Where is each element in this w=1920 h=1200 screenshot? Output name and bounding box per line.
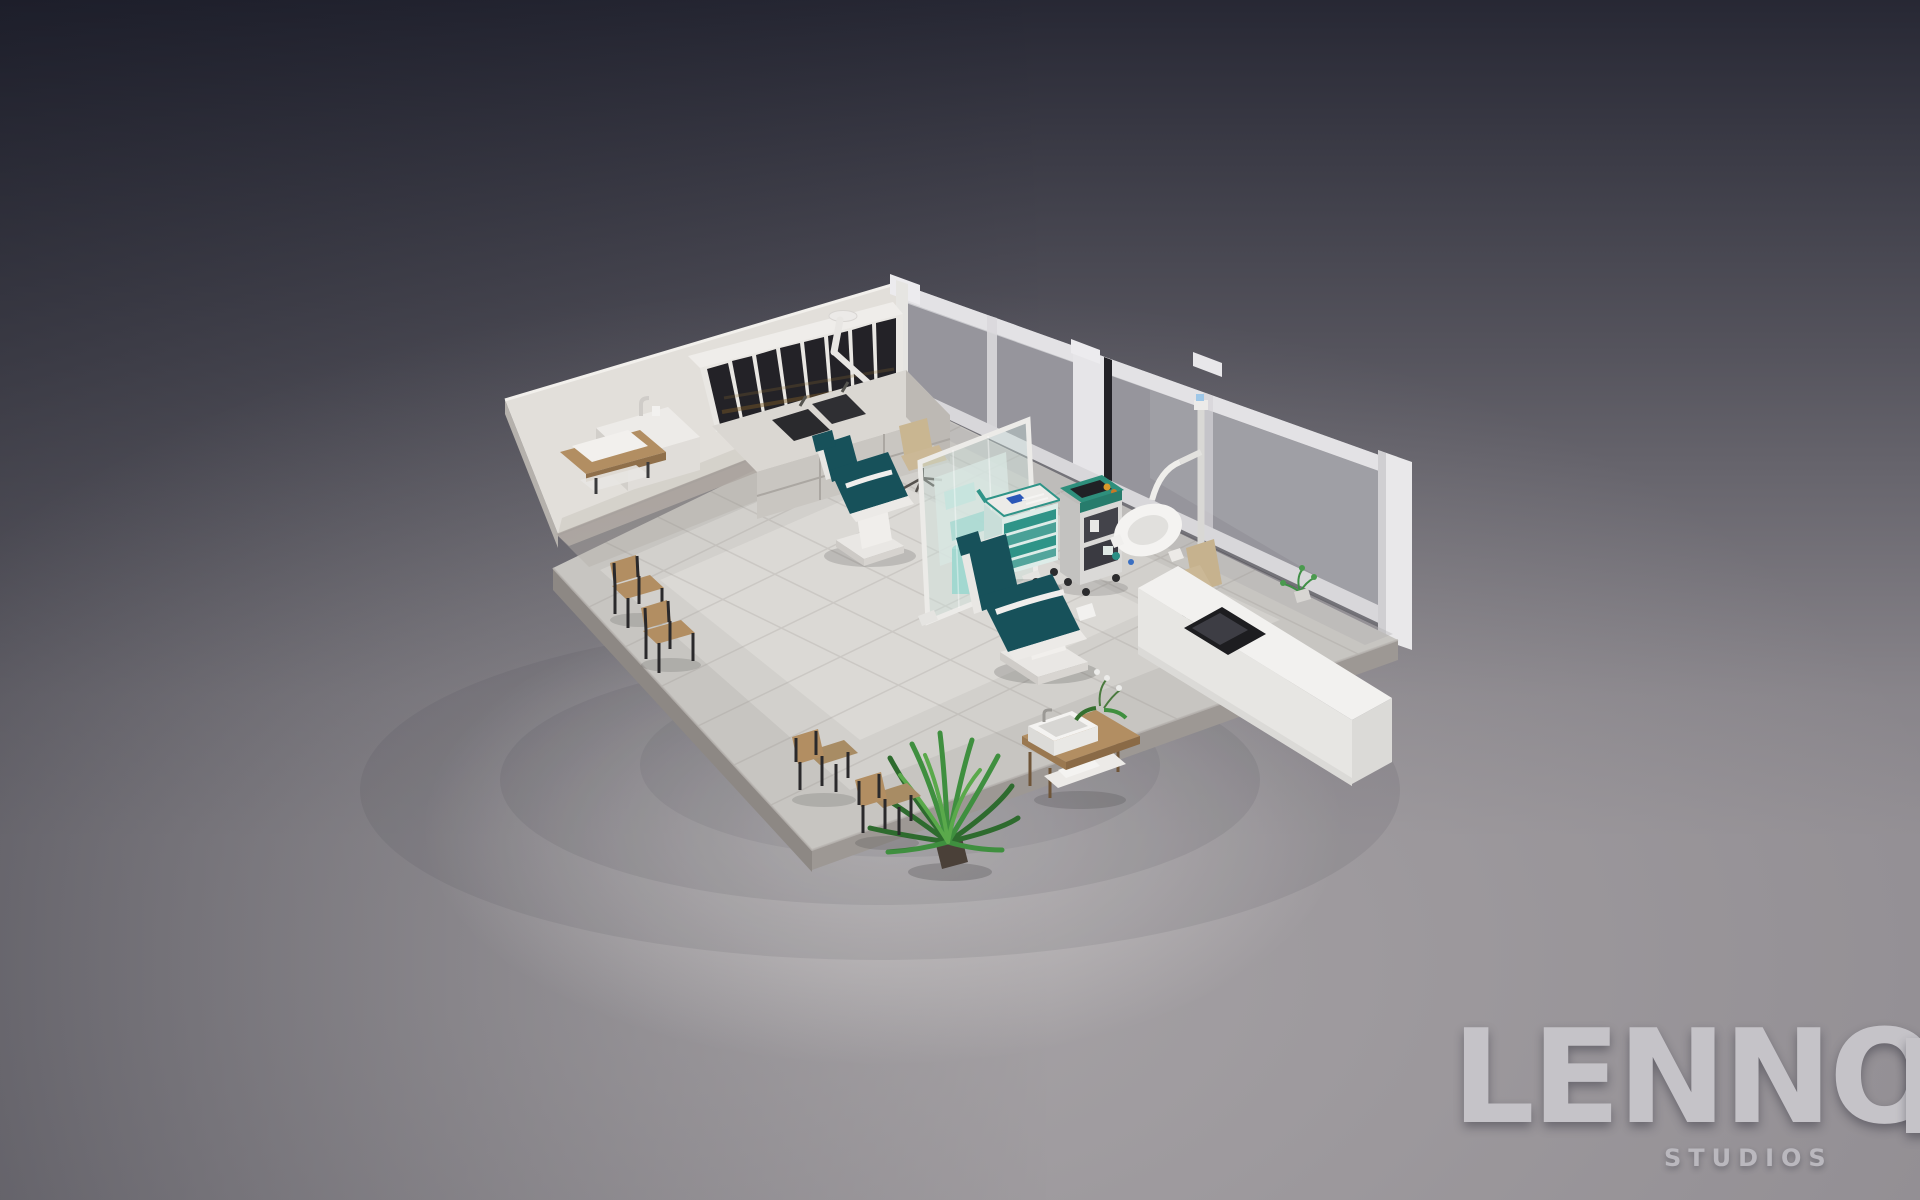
door-gap: [1104, 357, 1112, 498]
clinic-render: [0, 0, 1920, 1200]
studio-backdrop: LENNO STUDIOS: [0, 0, 1920, 1200]
wall-mullion: [987, 315, 997, 442]
